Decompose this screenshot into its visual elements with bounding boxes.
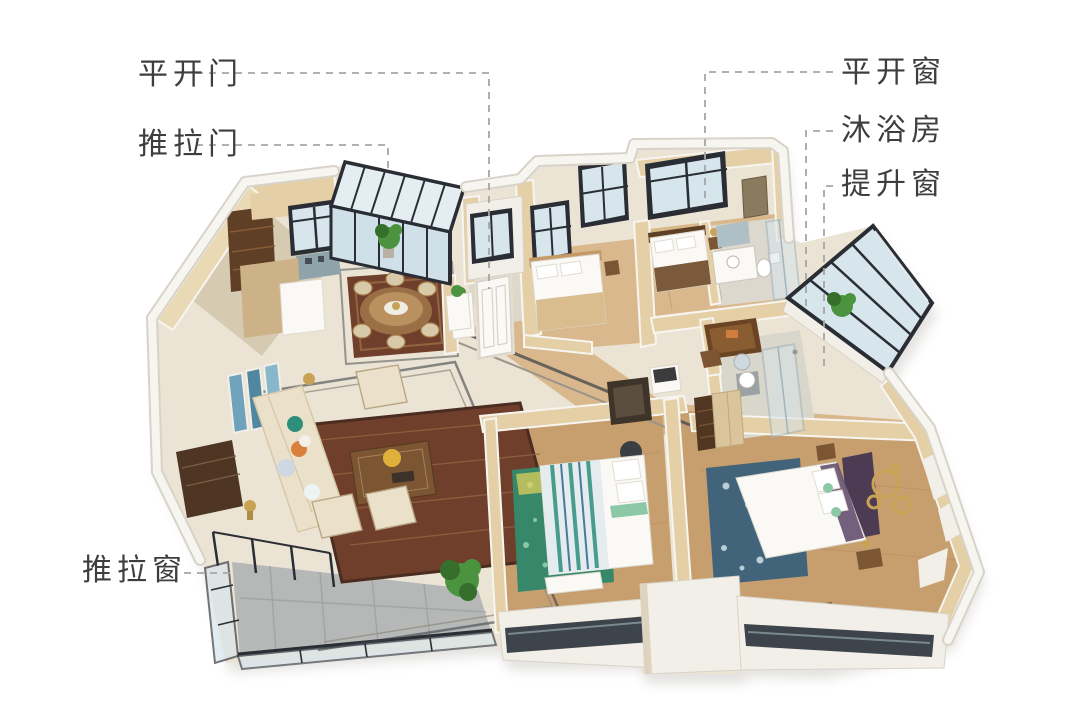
master-nightstand-1 bbox=[816, 443, 836, 461]
swing-door bbox=[474, 274, 515, 360]
tv-console bbox=[176, 440, 243, 518]
console-plant bbox=[451, 285, 463, 297]
bath1-toilet bbox=[757, 259, 771, 277]
label-swing-door: 平开门 bbox=[138, 58, 243, 92]
label-lift-window: 提升窗 bbox=[841, 168, 946, 202]
bottom-pillar bbox=[640, 576, 744, 674]
small-bed bbox=[529, 250, 606, 331]
master-wardrobe bbox=[712, 390, 744, 448]
entry-console bbox=[446, 293, 471, 331]
small-bedroom-window-b bbox=[578, 158, 629, 228]
bed2 bbox=[540, 455, 653, 575]
entry-window bbox=[470, 208, 514, 264]
label-sliding-window: 推拉窗 bbox=[82, 554, 187, 588]
label-shower-room: 沐浴房 bbox=[841, 114, 946, 148]
floorplan-render bbox=[0, 0, 1080, 718]
label-casement-window: 平开窗 bbox=[841, 56, 946, 90]
kitchen bbox=[227, 190, 341, 338]
small-nightstand bbox=[604, 260, 620, 276]
masterbath-mirror bbox=[734, 354, 750, 370]
label-sliding-door: 推拉门 bbox=[138, 128, 243, 162]
floorplan-stage: 平开门 推拉门 平开窗 沐浴房 提升窗 推拉窗 bbox=[0, 0, 1080, 718]
kitchen-island bbox=[280, 279, 325, 335]
study-chair bbox=[700, 349, 722, 368]
topright-art bbox=[742, 176, 768, 218]
kitchen-upper-cabinet bbox=[250, 190, 290, 220]
topright-bed bbox=[648, 225, 711, 292]
dining-table bbox=[360, 287, 432, 335]
